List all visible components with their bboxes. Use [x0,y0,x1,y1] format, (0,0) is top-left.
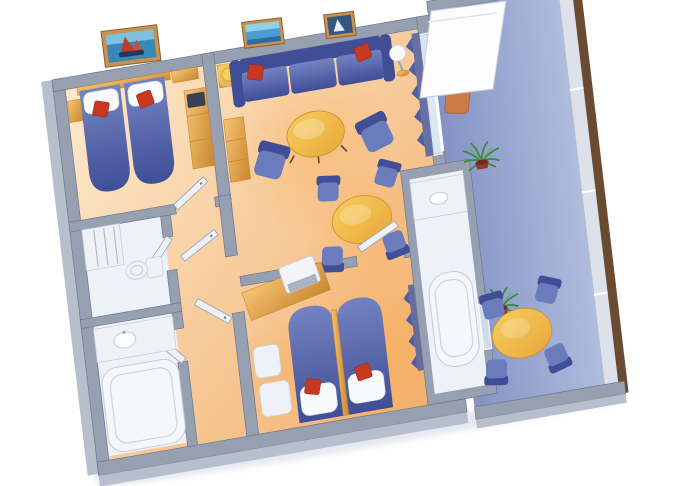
hall-bath-divider-upper [161,215,173,238]
bathroom-tub [93,316,187,454]
suite-floor-plan-illustration [0,0,680,486]
bathtub [100,357,187,454]
red-throw-pillow [92,101,110,118]
dining-chair [316,175,340,202]
shower-stall [82,224,124,271]
open-glass-door-leaf [420,1,506,98]
red-throw-pillow [304,379,321,395]
bench-seat [252,343,281,379]
bench-seat [259,379,292,417]
suite-plan [40,0,630,486]
wall-picture-sailboat [101,25,161,68]
dining-chair [320,246,344,273]
wall-picture-seascape [242,18,285,49]
balcony-chair [484,359,508,386]
red-throw-pillow [247,64,264,80]
wall-picture-ship [324,11,357,38]
